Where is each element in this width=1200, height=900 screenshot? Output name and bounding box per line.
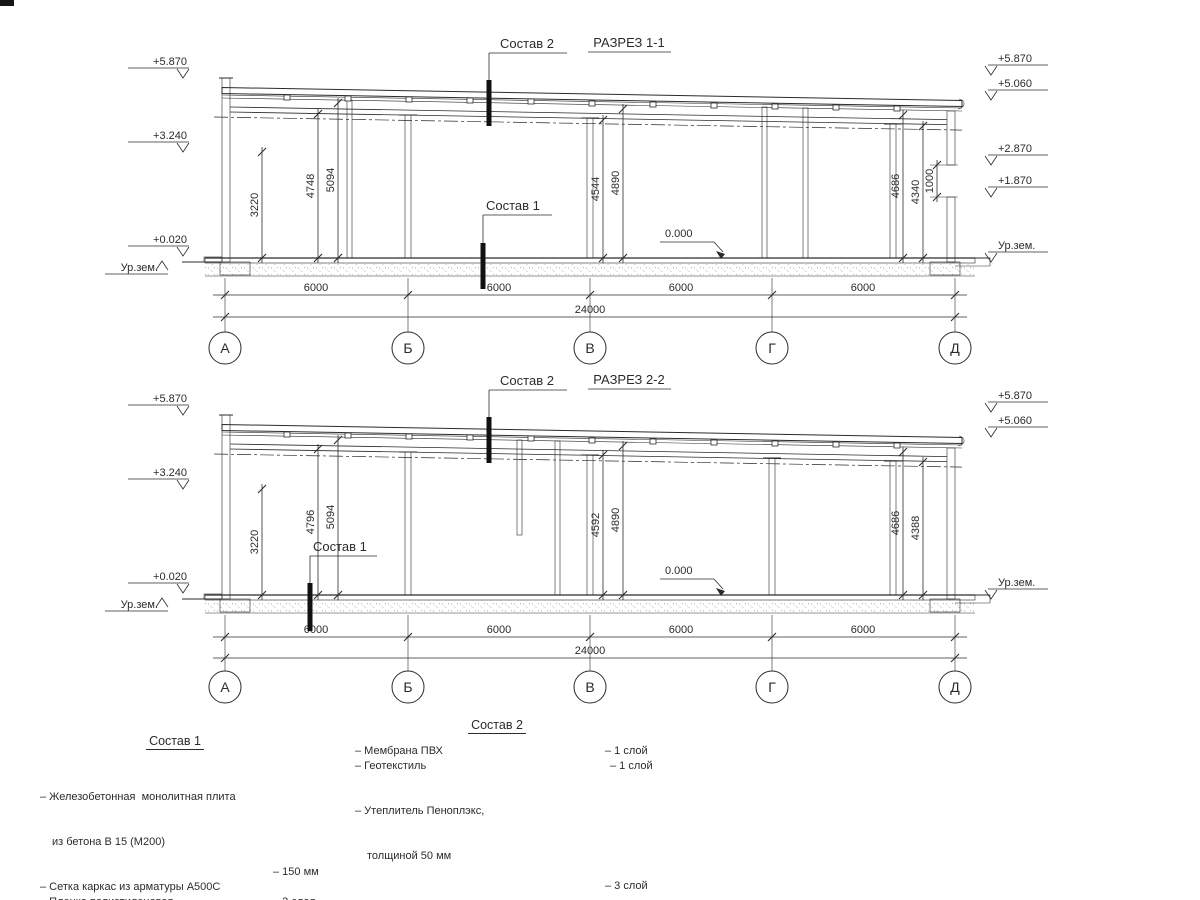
list-item: – Утеплитель Пеноплэкс, толщиной 50 мм –… (355, 774, 685, 894)
list-item: – Пленка полиэтиленовая – 2 слоя (40, 895, 360, 900)
s1-zero-mark: 0.000 (665, 228, 693, 240)
s1-elev-left-ground: Ур.зем. (121, 262, 158, 274)
s1-axis-d: Д (950, 340, 960, 356)
s2-axis-g: Г (768, 679, 776, 695)
axis-bubble: Д (939, 671, 971, 703)
s2-structure (182, 415, 990, 613)
elevation-mark: +5.870 (128, 393, 189, 415)
s1-bottom-dims: 6000 6000 6000 6000 24000 (213, 278, 967, 332)
s1-span-1: 6000 (304, 282, 328, 294)
s2-elev-left-top: +5.870 (153, 393, 187, 405)
s2-elev-left-floor: +0.020 (153, 571, 187, 583)
list-item: – Утеплитель Эковер Y=100 кг/м3, толщино… (355, 894, 685, 900)
s2-floor (182, 594, 990, 613)
section-2: +5.870 +3.240 +0.020 Ур.зем. +5.870 +5.0… (105, 372, 1048, 703)
item-text: из бетона В 15 (М200) (40, 835, 273, 850)
s2-title: РАЗРЕЗ 2-2 (593, 372, 665, 387)
s2-roof (214, 425, 964, 468)
s2-labels: Состав 2 РАЗРЕЗ 2-2 Состав 1 0.000 (308, 372, 726, 631)
s1-elev-right-ground: Ур.зем. (998, 240, 1035, 252)
elevation-mark: Ур.зем. (105, 598, 168, 611)
section-1: +5.870 +3.240 +0.020 Ур.зем. +5.870 +5.0… (105, 35, 1048, 364)
elevation-mark: +5.870 (985, 390, 1048, 412)
s1-floor (182, 257, 990, 276)
s2-axis-b: Б (403, 679, 412, 695)
list-item: – Мембрана ПВХ – 1 слой (355, 744, 685, 759)
s1-dim-c1: 4686 (890, 174, 902, 198)
axis-bubble: Г (756, 671, 788, 703)
axis-bubble: А (209, 332, 241, 364)
s2-elev-right-top: +5.870 (998, 390, 1032, 402)
s2-dim-b2: 4890 (610, 508, 622, 532)
scan-artifact (0, 0, 14, 6)
elevation-mark: Ур.зем. (985, 240, 1048, 262)
item-value: – 1 слой (605, 744, 648, 759)
s2-span-4: 6000 (851, 624, 875, 636)
s2-partition-2 (555, 441, 560, 595)
s1-dim-c2: 4340 (910, 180, 922, 204)
item-value: – 1 слой (610, 759, 653, 774)
axis-bubble: А (209, 671, 241, 703)
axis-bubble: В (574, 332, 606, 364)
list-item: – Геотекстиль – 1 слой (355, 759, 685, 774)
item-text: – Геотекстиль (355, 759, 610, 774)
elevation-mark: +5.870 (128, 56, 189, 78)
s2-zero-mark: 0.000 (665, 565, 693, 577)
s1-sostav1-marker (481, 243, 486, 289)
item-value: – 150 мм (273, 865, 319, 880)
s1-columns (399, 115, 902, 258)
sostav-1-title: Состав 1 (40, 734, 310, 749)
s1-left-wall (222, 78, 230, 262)
s2-axes: А Б В Г Д (209, 671, 971, 703)
axis-bubble: Д (939, 332, 971, 364)
s1-axes: А Б В Г Д (209, 332, 971, 364)
s2-elevation-marks-left: +5.870 +3.240 +0.020 Ур.зем. (105, 393, 189, 611)
s2-sostav1-marker (308, 583, 313, 631)
list-item: – Сетка каркас из арматуры А500С (40, 880, 360, 895)
s2-dim-wall: 3220 (249, 530, 261, 554)
s2-left-wall (222, 415, 230, 599)
s2-span-1: 6000 (304, 624, 328, 636)
s1-elev-right-win-top: +2.870 (998, 143, 1032, 155)
s1-elev-right-win-bottom: +1.870 (998, 175, 1032, 187)
s1-right-wall-lower (947, 197, 955, 262)
s1-dim-wall: 3220 (249, 193, 261, 217)
s1-span-3: 6000 (669, 282, 693, 294)
s1-elev-left-top: +5.870 (153, 56, 187, 68)
s1-partition-2 (762, 107, 767, 258)
elevation-mark: +3.240 (128, 130, 189, 152)
s2-axis-v: В (585, 679, 594, 695)
elevation-mark: +2.870 (985, 143, 1048, 165)
axis-bubble: Б (392, 332, 424, 364)
s1-total-dim: 24000 (575, 304, 606, 316)
s1-title: РАЗРЕЗ 1-1 (593, 35, 665, 50)
elevation-mark: +0.020 (128, 234, 189, 256)
s2-elevation-marks-right: +5.870 +5.060 Ур.зем. (985, 390, 1048, 599)
item-text: – Железобетонная монолитная плита (40, 790, 273, 805)
elevation-mark: +5.870 (985, 53, 1048, 75)
s1-dim-b1: 4544 (590, 177, 602, 201)
s1-axis-g: Г (768, 340, 776, 356)
elevation-mark: +5.060 (985, 78, 1048, 100)
s1-span-4: 6000 (851, 282, 875, 294)
s2-sostav1-label: Состав 1 (313, 539, 367, 554)
s1-partition-3 (803, 108, 808, 258)
item-text: – Утеплитель Пеноплэкс, (355, 804, 605, 819)
axis-bubble: В (574, 671, 606, 703)
item-text: – Мембрана ПВХ (355, 744, 605, 759)
s2-axis-d: Д (950, 679, 960, 695)
elevation-mark: +1.870 (985, 175, 1048, 197)
s2-bottom-dims: 6000 6000 6000 6000 24000 (213, 615, 967, 671)
s2-span-2: 6000 (487, 624, 511, 636)
s1-elev-left-floor: +0.020 (153, 234, 187, 246)
s1-axis-b: Б (403, 340, 412, 356)
s1-roof (214, 88, 964, 131)
s2-elev-right-roof: +5.060 (998, 415, 1032, 427)
s1-elev-right-top: +5.870 (998, 53, 1032, 65)
s2-right-wall (947, 448, 955, 599)
list-item: – Железобетонная монолитная плита из бет… (40, 760, 360, 880)
s1-dim-a2: 5094 (325, 168, 337, 192)
item-text: – Сетка каркас из арматуры А500С (40, 880, 273, 895)
s1-sostav1-label: Состав 1 (486, 198, 540, 213)
item-text: толщиной 50 мм (355, 849, 605, 864)
s2-dim-a2: 5094 (325, 505, 337, 529)
s1-elevation-marks-right: +5.870 +5.060 +2.870 +1.870 Ур.зем. (985, 53, 1048, 262)
sostav-2-title: Состав 2 (355, 718, 639, 733)
s1-elev-right-roof: +5.060 (998, 78, 1032, 90)
s1-span-2: 6000 (487, 282, 511, 294)
s1-sostav2-label: Состав 2 (500, 36, 554, 51)
s2-sostav2-label: Состав 2 (500, 373, 554, 388)
elevation-mark: +3.240 (128, 467, 189, 489)
s2-dim-a1: 4796 (305, 510, 317, 534)
s2-span-3: 6000 (669, 624, 693, 636)
s2-sostav2-marker (487, 417, 492, 463)
axis-bubble: Г (756, 332, 788, 364)
elevation-mark: Ур.зем. (985, 577, 1048, 599)
s2-axis-a: А (220, 679, 230, 695)
s1-elev-left-mid: +3.240 (153, 130, 187, 142)
item-text: – Пленка полиэтиленовая (40, 895, 273, 900)
s1-sostav2-marker (487, 80, 492, 126)
s1-dim-window: 1000 (924, 169, 936, 193)
elevation-mark: +5.060 (985, 415, 1048, 437)
s2-dim-c1: 4686 (890, 511, 902, 535)
axis-bubble: Б (392, 671, 424, 703)
s2-elev-left-ground: Ур.зем. (121, 599, 158, 611)
s1-right-wall-upper (947, 111, 955, 165)
s1-elevation-marks-left: +5.870 +3.240 +0.020 Ур.зем. (105, 56, 189, 274)
s1-partition-1 (347, 100, 352, 258)
s2-elev-right-ground: Ур.зем. (998, 577, 1035, 589)
elevation-mark: +0.020 (128, 571, 189, 593)
s1-axis-v: В (585, 340, 594, 356)
s1-structure (182, 78, 990, 276)
s2-columns (399, 452, 902, 595)
item-value: – 2 слоя (273, 895, 315, 900)
sostav-2-block: Состав 2 – Мембрана ПВХ – 1 слой – Геоте… (355, 718, 685, 900)
sostav-1-block: Состав 1 – Железобетонная монолитная пли… (40, 734, 360, 900)
elevation-mark: Ур.зем. (105, 261, 168, 274)
item-value: – 3 слой (605, 879, 648, 894)
s2-elev-left-mid: +3.240 (153, 467, 187, 479)
s1-axis-a: А (220, 340, 230, 356)
s2-dim-b1: 4592 (590, 513, 602, 537)
s1-dim-a1: 4748 (305, 174, 317, 198)
s1-dim-b2: 4890 (610, 171, 622, 195)
s2-dim-c2: 4388 (910, 516, 922, 540)
s2-total-dim: 24000 (575, 645, 606, 657)
